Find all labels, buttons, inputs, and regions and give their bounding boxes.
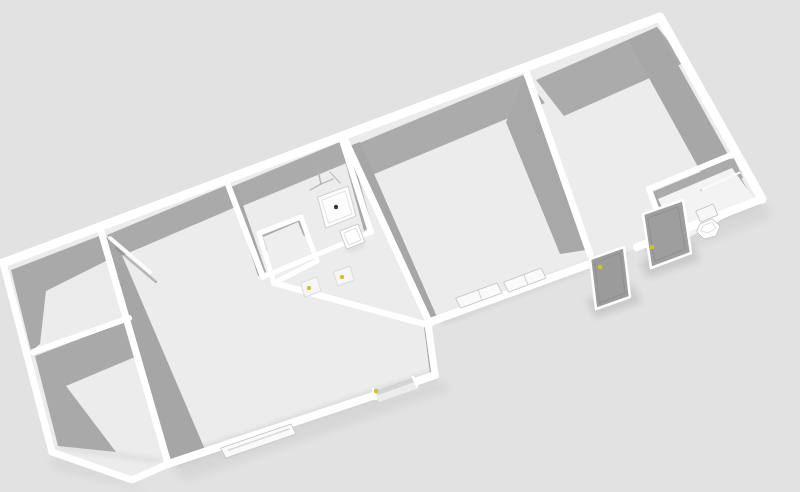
wc-door-1-handle — [307, 286, 311, 290]
scene-root — [3, 17, 772, 492]
shower-drain — [334, 205, 338, 209]
entry-door-handle — [374, 389, 378, 393]
floorplan-3d-viewport[interactable] — [0, 0, 800, 492]
door-a-handle — [598, 265, 603, 270]
door-a-panel — [590, 247, 630, 309]
door-b-handle — [650, 245, 655, 250]
wc-door-2-handle — [340, 275, 344, 279]
floorplan-svg — [0, 0, 800, 492]
towel-bar-end-left — [700, 189, 703, 192]
